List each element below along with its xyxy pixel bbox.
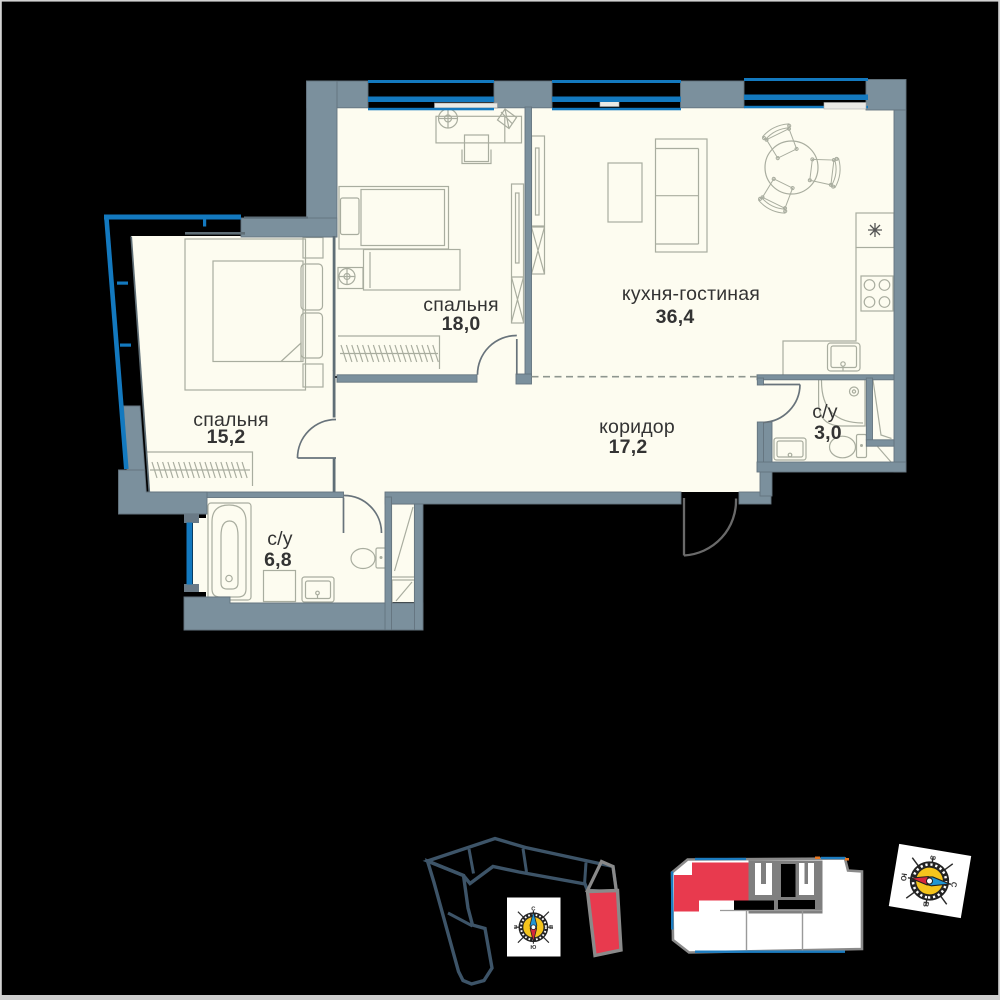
svg-text:15,2: 15,2 bbox=[207, 426, 246, 448]
svg-text:Ю: Ю bbox=[530, 945, 536, 951]
svg-text:с/у: с/у bbox=[812, 401, 838, 423]
svg-text:кухня-гостиная: кухня-гостиная bbox=[622, 283, 760, 305]
svg-text:18,0: 18,0 bbox=[442, 313, 481, 335]
svg-text:В: В bbox=[549, 925, 553, 931]
svg-text:6,8: 6,8 bbox=[264, 549, 292, 571]
svg-text:коридор: коридор bbox=[599, 416, 675, 438]
svg-text:3,0: 3,0 bbox=[814, 422, 842, 444]
svg-text:с/у: с/у bbox=[267, 528, 293, 550]
svg-text:Ю: Ю bbox=[899, 873, 909, 882]
svg-text:36,4: 36,4 bbox=[656, 306, 695, 328]
svg-text:З: З bbox=[514, 925, 518, 931]
svg-text:17,2: 17,2 bbox=[609, 436, 648, 458]
